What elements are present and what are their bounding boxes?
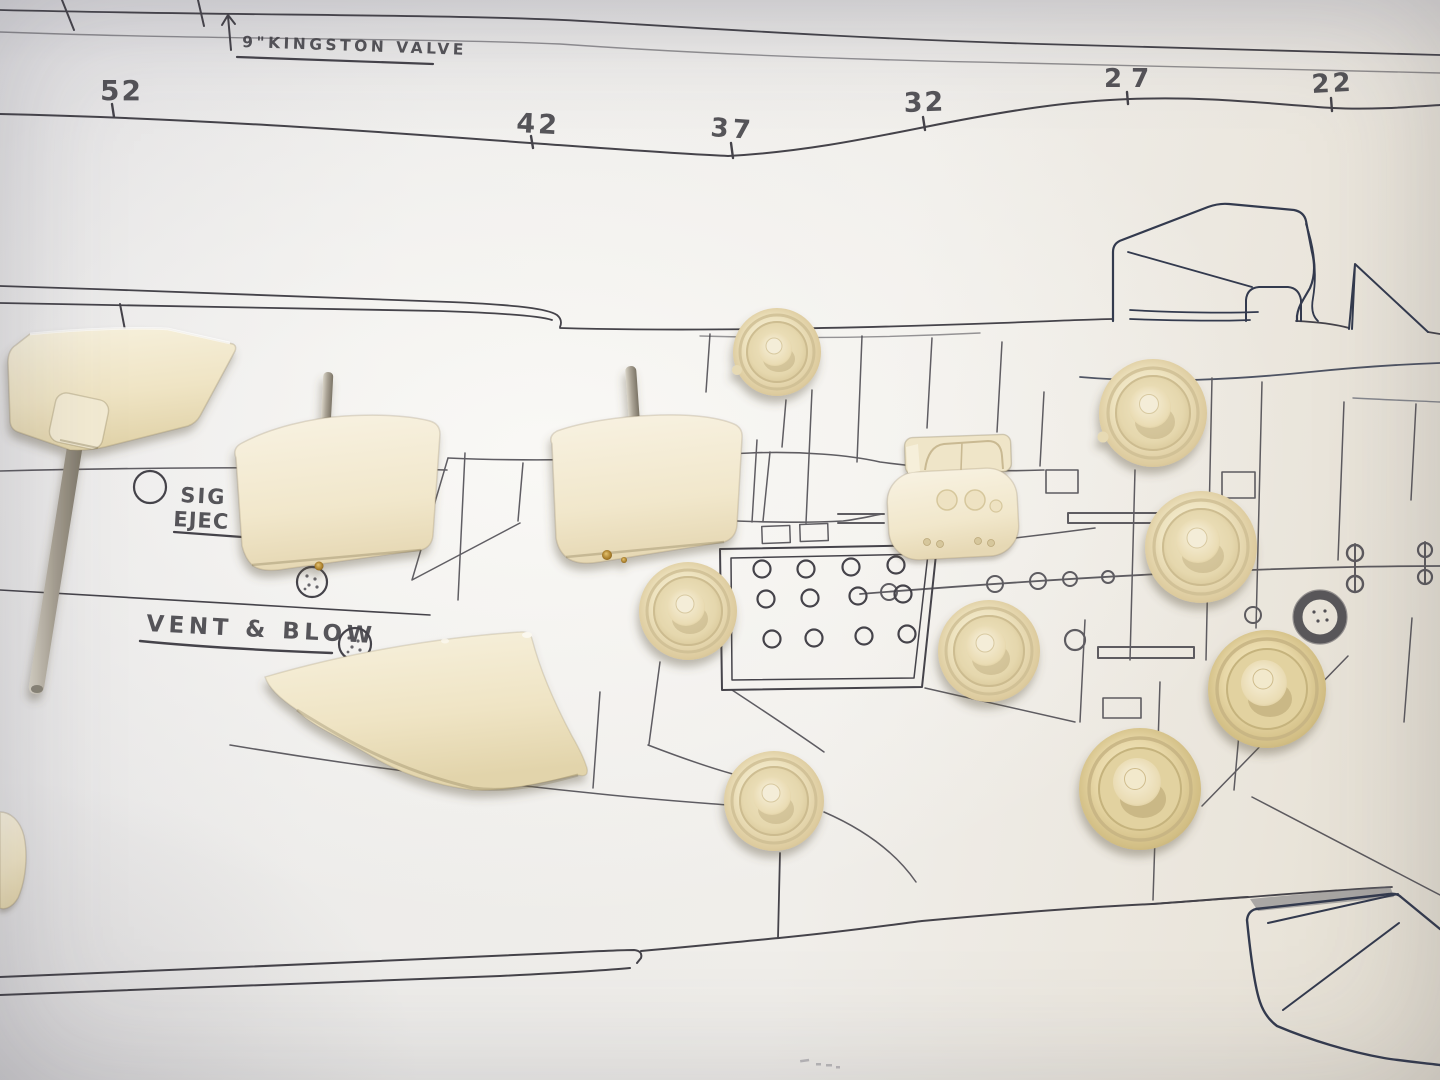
bracket-base: [886, 467, 1020, 562]
free-flood-holes-panel: [720, 545, 937, 690]
resin-wheel-2: [639, 562, 737, 660]
photo-of-parts-on-plan: 9"KINGSTON VALVE 52 42 37 32 27 22: [0, 0, 1440, 1080]
brass-pivot: [602, 550, 612, 560]
kingston-valve-annotation: 9"KINGSTON VALVE: [222, 15, 467, 64]
signal-ejector-label-line2: EJEC: [173, 507, 230, 534]
gear-ring: [1293, 590, 1347, 644]
chip-mark: [441, 639, 449, 644]
resin-curved-fin: [265, 632, 587, 790]
resin-wheel-5: [1145, 491, 1257, 603]
brass-pivot-small: [621, 557, 627, 563]
periscope-fairing-triangle: [1349, 264, 1428, 332]
superstructure-lines: [0, 286, 1440, 337]
keel-and-stern: [0, 853, 1440, 1069]
plane-blade: [551, 415, 742, 563]
resin-wheel-7: [1079, 728, 1201, 850]
shaft-tip: [31, 685, 43, 693]
fin-blade: [8, 328, 236, 450]
station-line: 52 42 37 32 27 22: [0, 64, 1440, 158]
vent-blow-label: VENT & BLOW: [146, 611, 377, 649]
deck-lines: [0, 0, 1440, 73]
watermark-smudge: [800, 1059, 840, 1069]
flood-grate-circle: [297, 567, 327, 597]
resin-engine-bracket: [886, 434, 1020, 561]
tick-mark: [62, 0, 74, 30]
signal-ejector-label-line1: SIG: [180, 483, 227, 509]
station-number-22: 22: [1311, 68, 1355, 100]
bracket-lobe: [965, 490, 985, 510]
signal-ejector-symbol: [134, 471, 166, 503]
resin-wheel-8: [724, 751, 824, 851]
bracket-lobe: [937, 490, 957, 510]
plane-blade: [235, 415, 440, 570]
station-number-32: 32: [903, 87, 946, 119]
stern-fin-drawing: [1247, 894, 1440, 1065]
free-flood-holes: [754, 557, 916, 648]
fin-blade: [265, 632, 587, 790]
station-number-27: 27: [1104, 64, 1158, 94]
resin-wheel-3: [938, 600, 1040, 702]
resin-dive-plane-1: [235, 372, 440, 571]
station-number-37: 37: [710, 113, 756, 146]
chip-mark: [522, 632, 532, 638]
fin-hub: [47, 391, 110, 451]
station-number-42: 42: [516, 108, 561, 141]
resin-dive-plane-2: [551, 366, 742, 564]
resin-wheel-4: [1098, 359, 1208, 467]
resin-wheel-1: [732, 308, 821, 396]
kingston-valve-label: 9"KINGSTON VALVE: [242, 33, 467, 59]
steel-shaft: [29, 434, 84, 694]
centreline: [860, 566, 1440, 594]
resin-wheel-6: [1208, 630, 1326, 748]
resin-part-edge-fragment: [0, 812, 26, 909]
station-number-52: 52: [100, 74, 143, 107]
brass-pivot: [315, 562, 324, 571]
scene: 9"KINGSTON VALVE 52 42 37 32 27 22: [0, 0, 1440, 1080]
